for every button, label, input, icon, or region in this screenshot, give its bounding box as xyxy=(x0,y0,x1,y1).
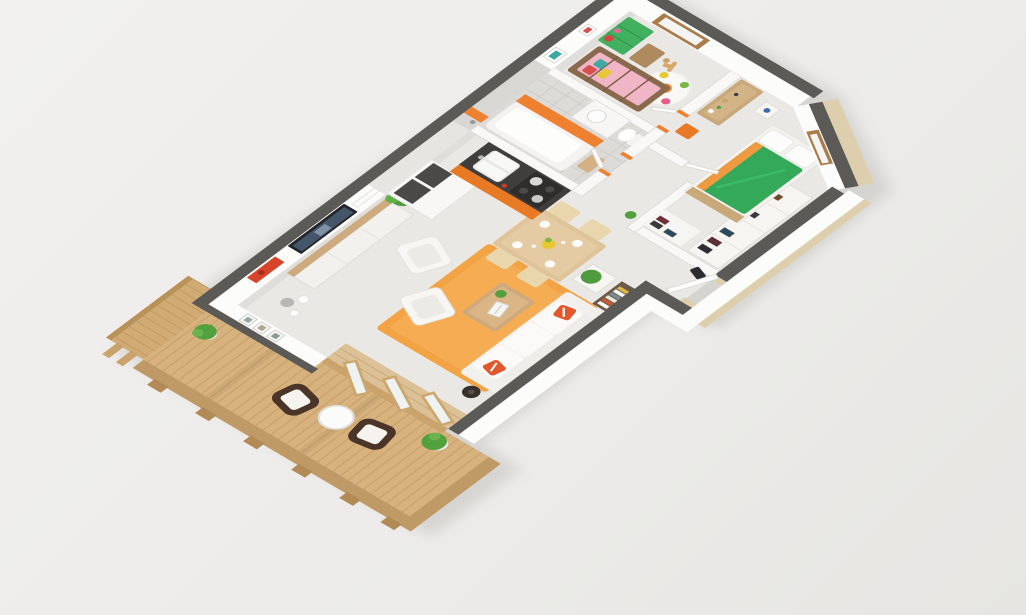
floor-plan-render xyxy=(0,0,1026,615)
floor-plan-svg xyxy=(0,0,1026,615)
